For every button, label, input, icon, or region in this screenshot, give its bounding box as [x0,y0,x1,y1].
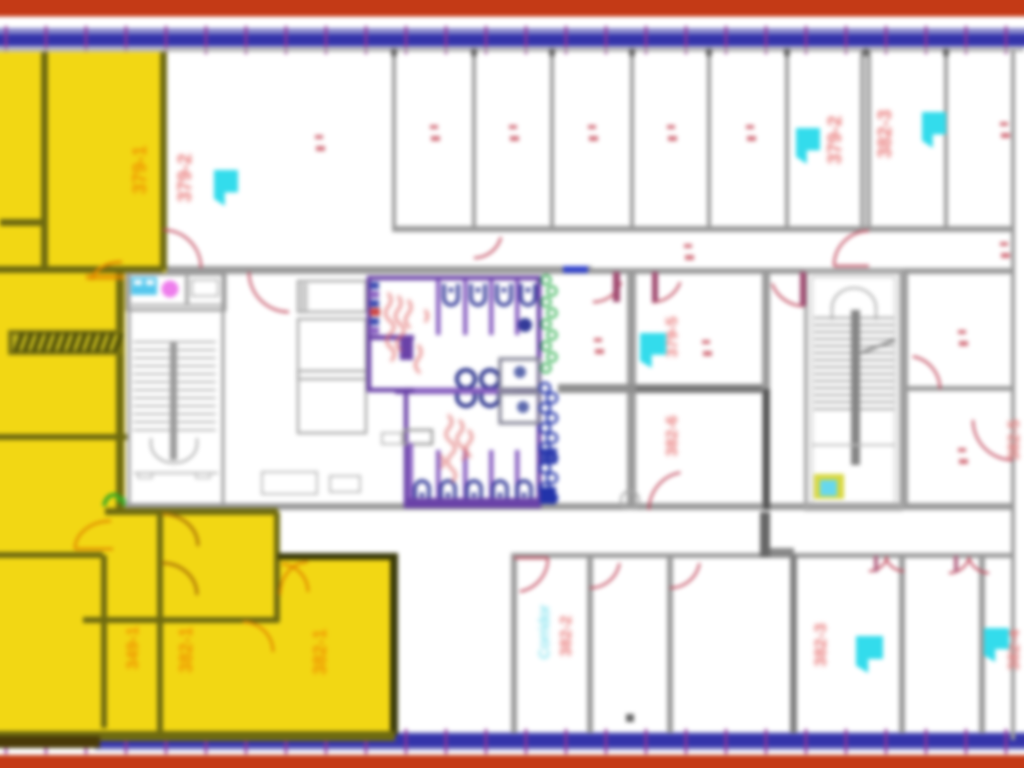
svg-text:382-3: 382-3 [811,623,830,666]
svg-text:382-1: 382-1 [176,627,196,673]
svg-text:382-1: 382-1 [310,629,330,675]
svg-text:379-5: 379-5 [664,316,681,357]
svg-text:382-6: 382-6 [664,415,681,456]
svg-text:379-1: 379-1 [130,145,151,194]
svg-text:Corridor: Corridor [536,605,553,659]
svg-text:379-2: 379-2 [175,154,196,203]
svg-text:382-3: 382-3 [875,110,896,159]
svg-text:349-1: 349-1 [123,626,142,669]
svg-text:382-5: 382-5 [1006,419,1023,460]
svg-text:379-2: 379-2 [825,116,846,165]
svg-text:382-2: 382-2 [558,615,575,656]
